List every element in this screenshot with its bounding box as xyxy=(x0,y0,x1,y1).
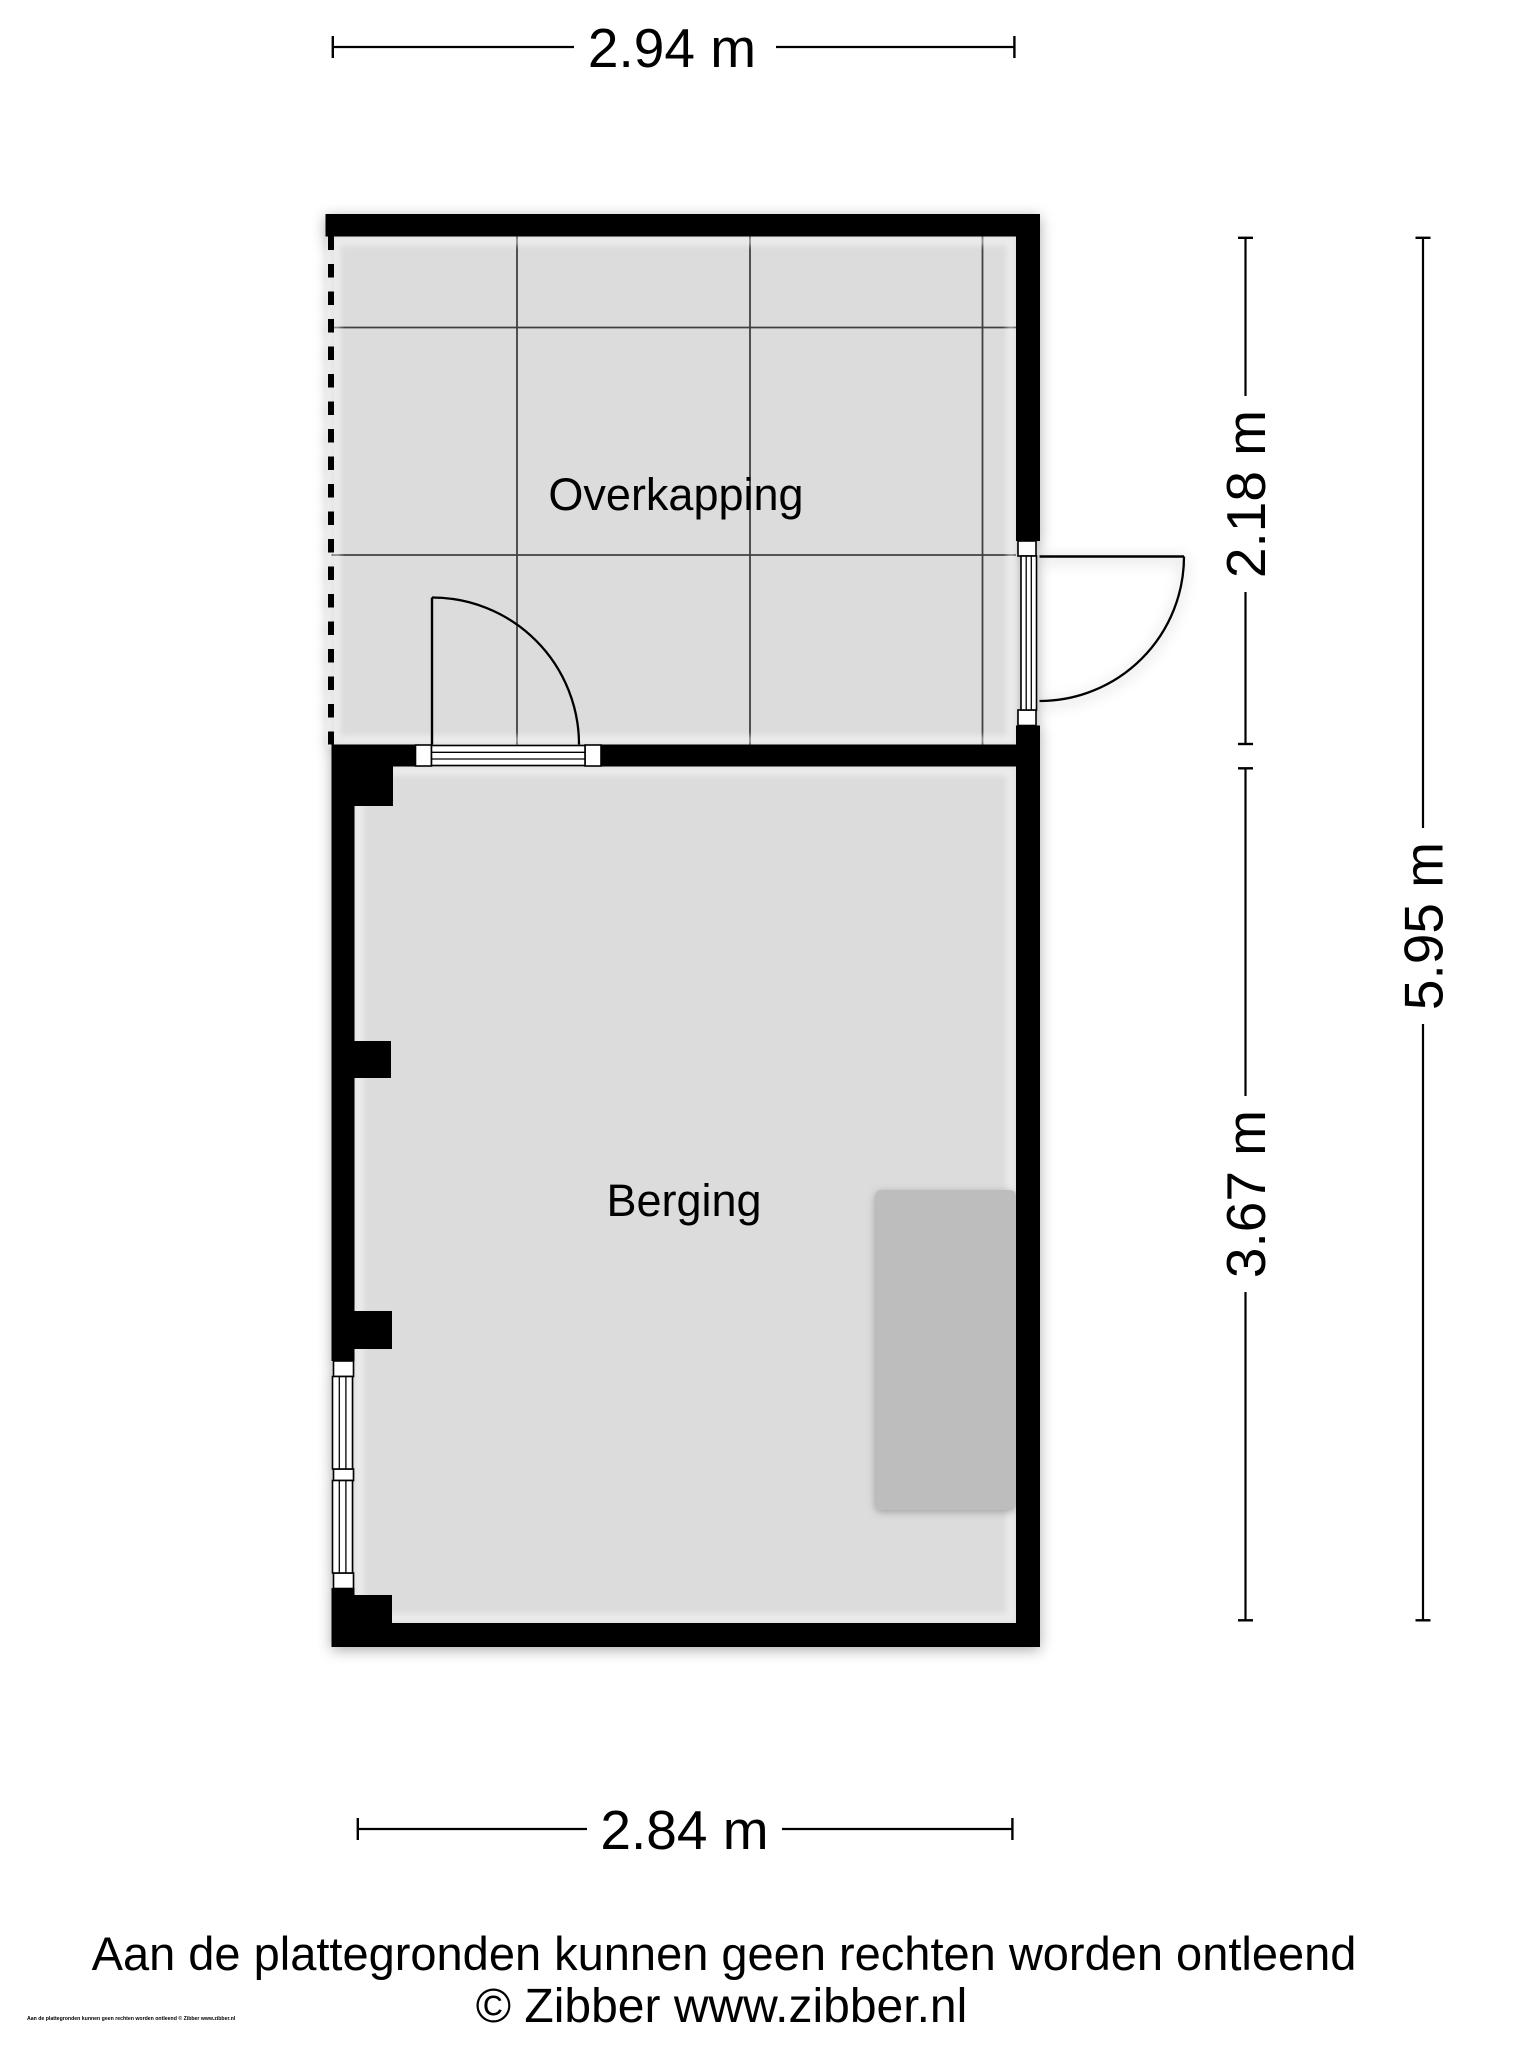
svg-text:Aan de plattegronden kunnen ge: Aan de plattegronden kunnen geen rechten… xyxy=(27,2015,236,2022)
svg-text:Overkapping: Overkapping xyxy=(548,469,803,520)
svg-text:5.95 m: 5.95 m xyxy=(1393,842,1455,1010)
svg-text:Berging: Berging xyxy=(606,1175,761,1226)
svg-text:2.84 m: 2.84 m xyxy=(600,1799,768,1861)
svg-text:2.18 m: 2.18 m xyxy=(1215,410,1277,578)
svg-text:3.67 m: 3.67 m xyxy=(1215,1110,1277,1278)
svg-text:2.94 m: 2.94 m xyxy=(588,17,756,79)
svg-text:Aan de plattegronden kunnen ge: Aan de plattegronden kunnen geen rechten… xyxy=(92,1927,1357,1980)
svg-text:© Zibber www.zibber.nl: © Zibber www.zibber.nl xyxy=(476,1980,968,2033)
